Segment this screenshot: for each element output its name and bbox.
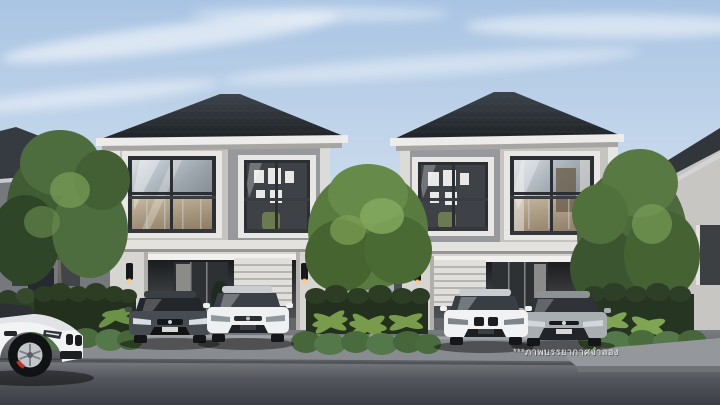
balustrade-post	[200, 199, 202, 229]
fender-vent	[4, 331, 17, 336]
wheel	[588, 338, 601, 346]
sconce-glow	[302, 279, 307, 284]
window-transom	[514, 192, 590, 195]
watermark: ***ภาพบรรยากาศจำลอง ***ภาพบรรยากาศจำลอง	[513, 347, 619, 359]
balustrade-post	[146, 199, 148, 229]
scene-canvas: ***ภาพบรรยากาศจำลอง ***ภาพบรรยากาศจำลอง	[0, 0, 720, 405]
side-mirror	[525, 306, 532, 311]
balustrade-post	[164, 199, 166, 229]
car-roof	[144, 291, 196, 298]
balustrade-base	[128, 229, 216, 233]
emblem	[246, 317, 250, 321]
kidney-grille	[66, 334, 73, 345]
house-left-floor-band	[104, 240, 340, 249]
balustrade-rail	[128, 196, 216, 199]
license-plate	[556, 329, 572, 334]
side-mirror	[125, 307, 132, 312]
kidney-grille	[474, 317, 484, 326]
wheel	[271, 334, 284, 342]
pillar-edge	[430, 256, 434, 334]
wheel	[450, 337, 463, 345]
balustrade-post	[568, 199, 570, 229]
kidney-grille	[488, 317, 498, 326]
balustrade-base	[244, 229, 310, 233]
interior-shelf	[556, 168, 576, 212]
side-mirror	[604, 308, 611, 313]
balustrade-post	[182, 199, 184, 229]
cloud	[190, 6, 450, 22]
emblem	[168, 320, 172, 324]
wheel-hub	[27, 352, 33, 358]
window-mullion	[275, 163, 278, 230]
window-transom	[132, 192, 212, 195]
balustrade-base	[418, 227, 488, 231]
side-mirror	[203, 303, 210, 308]
wheel	[134, 335, 147, 343]
window-mullion	[452, 165, 455, 228]
bumper-intake	[60, 351, 82, 359]
pillar-edge	[296, 252, 300, 336]
window-mullion	[550, 160, 553, 231]
planter-curb-face	[576, 366, 720, 372]
wheel	[509, 337, 522, 345]
side-mirror	[286, 303, 293, 308]
watermark-text: ***ภาพบรรยากาศจำลอง	[513, 347, 619, 358]
sconce-glow	[415, 280, 420, 285]
house-left-window-living	[122, 151, 222, 238]
license-plate	[240, 325, 256, 330]
side-mirror	[440, 306, 447, 311]
car-roof	[536, 291, 590, 298]
bg-right-window	[700, 225, 720, 285]
render-image: ***ภาพบรรยากาศจำลอง ***ภาพบรรยากาศจำลอง	[0, 0, 720, 405]
hedge-bed-middle	[291, 285, 441, 355]
balustrade-post	[548, 199, 550, 229]
license-plate	[478, 329, 494, 334]
license-plate	[162, 327, 178, 332]
kidney-grille	[75, 335, 82, 346]
car-roof	[459, 289, 511, 296]
house-left-floor-shadow	[104, 249, 340, 252]
balustrade-rail	[418, 198, 488, 201]
sconce-glow	[127, 279, 132, 284]
balustrade-rail	[244, 198, 310, 201]
balustrade-post	[528, 199, 530, 229]
car-roof	[222, 286, 272, 293]
wheel	[212, 334, 225, 342]
house-left-window-gallery	[238, 155, 316, 238]
emblem	[562, 321, 566, 325]
